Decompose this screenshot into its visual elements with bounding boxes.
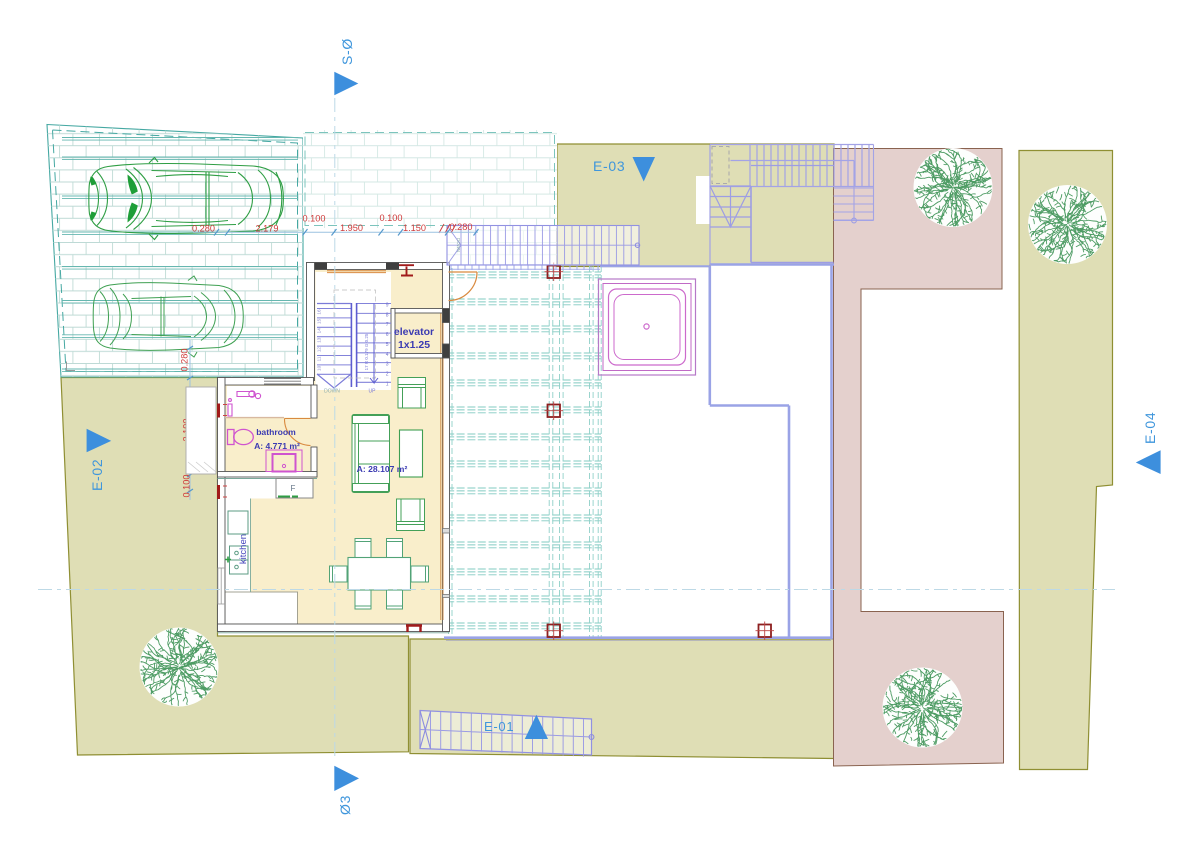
- svg-text:E-03: E-03: [593, 158, 625, 174]
- svg-text:A: 28.107 m²: A: 28.107 m²: [357, 464, 408, 474]
- svg-text:12: 12: [317, 347, 322, 353]
- svg-text:1.950: 1.950: [340, 223, 363, 233]
- svg-text:8: 8: [386, 312, 389, 318]
- svg-text:0.100: 0.100: [303, 214, 326, 224]
- svg-text:S-Ø: S-Ø: [339, 38, 355, 65]
- svg-text:kitchen: kitchen: [238, 534, 249, 564]
- svg-text:0.100: 0.100: [182, 475, 192, 498]
- svg-text:UP: UP: [369, 389, 377, 395]
- svg-text:0.100: 0.100: [380, 213, 403, 223]
- svg-text:2: 2: [386, 371, 389, 377]
- svg-text:E-04: E-04: [1142, 412, 1158, 444]
- svg-text:Ø3: Ø3: [337, 795, 353, 815]
- svg-text:DOWN: DOWN: [324, 389, 340, 395]
- svg-text:15: 15: [317, 318, 322, 324]
- svg-text:6: 6: [386, 332, 389, 338]
- svg-text:E-01: E-01: [484, 719, 514, 734]
- svg-text:1x1.25: 1x1.25: [398, 339, 430, 351]
- svg-text:14: 14: [317, 328, 322, 334]
- svg-text:4: 4: [386, 352, 389, 358]
- svg-text:13: 13: [317, 337, 322, 343]
- svg-text:10: 10: [317, 365, 322, 371]
- svg-text:1.150: 1.150: [403, 223, 426, 233]
- svg-text:2.179: 2.179: [256, 224, 279, 234]
- svg-text:bathroom: bathroom: [256, 427, 296, 437]
- svg-text:16: 16: [317, 309, 322, 315]
- svg-text:17 R 0.179 G 0.25: 17 R 0.179 G 0.25: [364, 333, 369, 370]
- svg-text:1: 1: [386, 381, 389, 387]
- svg-text:0.280: 0.280: [192, 224, 215, 234]
- svg-text:0.280: 0.280: [180, 349, 190, 372]
- svg-text:3: 3: [386, 362, 389, 368]
- svg-text:DOWN: DOWN: [456, 238, 461, 252]
- svg-text:5: 5: [386, 342, 389, 348]
- svg-text:11: 11: [317, 356, 322, 361]
- svg-text:E-02: E-02: [89, 459, 105, 491]
- svg-text:9: 9: [386, 303, 389, 309]
- svg-text:0.280: 0.280: [450, 222, 473, 232]
- svg-text:F: F: [291, 484, 296, 493]
- svg-text:7: 7: [386, 322, 389, 328]
- svg-text:elevator: elevator: [394, 326, 434, 338]
